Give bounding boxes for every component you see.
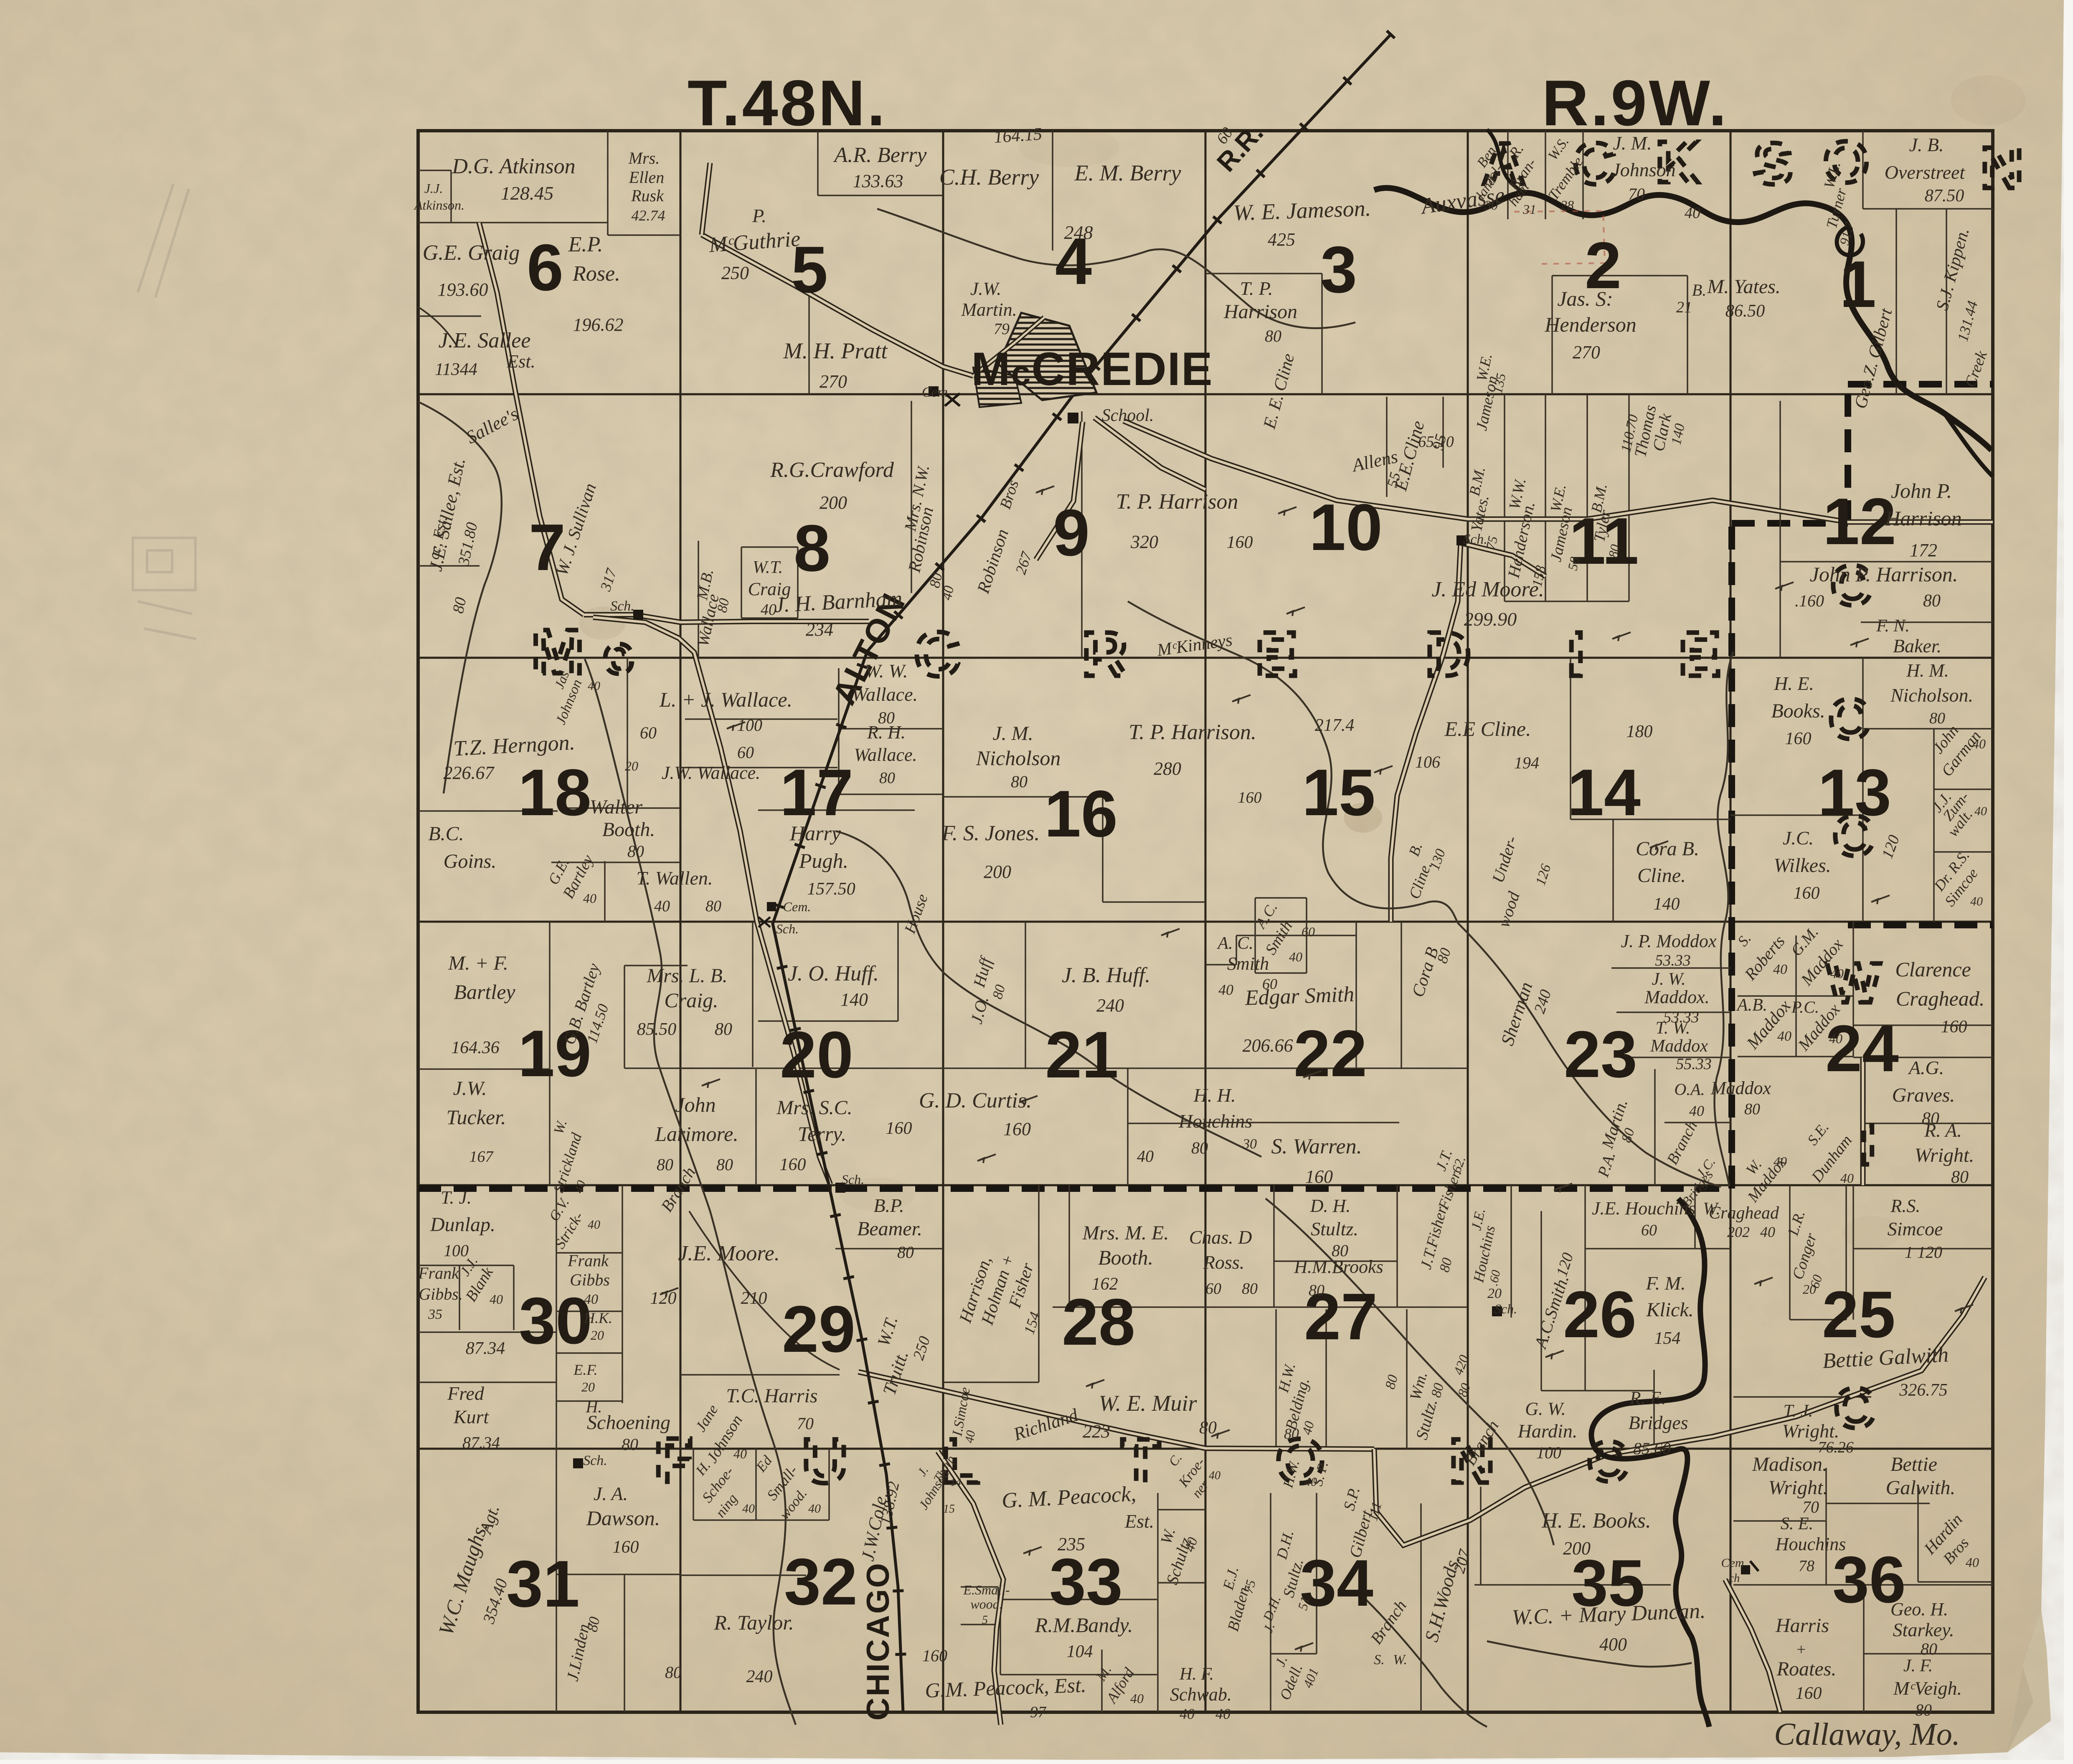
svg-text:c: c xyxy=(603,624,633,685)
svg-text:H.K.: H.K. xyxy=(584,1310,612,1326)
svg-text:20: 20 xyxy=(780,1018,853,1092)
svg-text:13: 13 xyxy=(1818,756,1891,829)
svg-text:G.E. Graig: G.E. Graig xyxy=(423,241,520,265)
svg-text:160: 160 xyxy=(1238,789,1262,806)
svg-text:T.48N.: T.48N. xyxy=(688,67,887,139)
svg-text:6: 6 xyxy=(527,231,563,304)
svg-text:Booth.: Booth. xyxy=(602,819,655,841)
svg-text:T. J.: T. J. xyxy=(1784,1402,1813,1421)
svg-text:I: I xyxy=(1567,619,1585,689)
svg-text:40: 40 xyxy=(1130,1691,1144,1706)
svg-text:Hardin.: Hardin. xyxy=(1517,1420,1578,1442)
svg-text:Callaway, Mo.: Callaway, Mo. xyxy=(1774,1717,1960,1752)
svg-text:28: 28 xyxy=(1560,198,1574,213)
svg-text:E: E xyxy=(1256,619,1297,689)
svg-text:270: 270 xyxy=(820,371,847,392)
svg-text:33: 33 xyxy=(1049,1545,1123,1619)
svg-text:Gibbs.: Gibbs. xyxy=(419,1285,463,1303)
svg-text:J.E. Moore.: J.E. Moore. xyxy=(678,1242,780,1265)
svg-text:80: 80 xyxy=(1744,1100,1760,1118)
svg-text:J.W.: J.W. xyxy=(970,279,1001,299)
svg-text:87.34: 87.34 xyxy=(462,1433,500,1452)
svg-text:Roates.: Roates. xyxy=(1776,1658,1837,1680)
svg-text:106: 106 xyxy=(1415,753,1440,771)
svg-text:25: 25 xyxy=(1822,1278,1895,1351)
svg-text:226.67: 226.67 xyxy=(444,763,495,783)
svg-text:Chas. D: Chas. D xyxy=(1189,1227,1252,1248)
svg-text:J.E. Sallee: J.E. Sallee xyxy=(439,329,531,352)
svg-text:F: F xyxy=(654,1425,693,1495)
svg-text:J.J.: J.J. xyxy=(424,181,443,196)
svg-text:R. Taylor.: R. Taylor. xyxy=(713,1611,794,1634)
svg-text:194: 194 xyxy=(1514,753,1539,772)
svg-text:Rose.: Rose. xyxy=(572,262,620,286)
svg-text:21: 21 xyxy=(1045,1018,1119,1092)
svg-text:B.: B. xyxy=(1692,281,1706,299)
svg-text:40: 40 xyxy=(1774,1154,1787,1169)
svg-text:T. P.: T. P. xyxy=(1240,278,1273,299)
svg-text:Rusk: Rusk xyxy=(631,186,664,205)
svg-text:Ellen: Ellen xyxy=(629,168,664,187)
svg-text:60: 60 xyxy=(640,723,657,742)
svg-text:D. H.: D. H. xyxy=(1310,1196,1351,1216)
svg-text:MᶜVeigh.: MᶜVeigh. xyxy=(1893,1678,1962,1699)
svg-text:J. F.: J. F. xyxy=(1903,1656,1933,1675)
svg-text:M. H. Pratt: M. H. Pratt xyxy=(783,338,888,363)
svg-text:W. W.: W. W. xyxy=(865,660,908,682)
svg-text:J. M.: J. M. xyxy=(1613,132,1652,154)
svg-text:35: 35 xyxy=(428,1307,442,1322)
svg-text:Atkinson.: Atkinson. xyxy=(414,198,464,213)
svg-text:Wright.: Wright. xyxy=(1915,1144,1974,1166)
svg-text:104: 104 xyxy=(1067,1642,1093,1661)
svg-text:20: 20 xyxy=(581,1379,595,1394)
svg-text:E.F.: E.F. xyxy=(573,1361,597,1378)
svg-text:Harry: Harry xyxy=(789,821,841,845)
svg-text:240: 240 xyxy=(1096,995,1124,1016)
svg-text:30: 30 xyxy=(1484,198,1498,213)
svg-text:+: + xyxy=(1796,1641,1807,1658)
svg-text:40: 40 xyxy=(962,1429,978,1444)
svg-text:M. Yates.: M. Yates. xyxy=(1707,276,1781,298)
svg-text:10: 10 xyxy=(1309,491,1383,564)
svg-text:40: 40 xyxy=(1970,895,1983,908)
svg-text:40: 40 xyxy=(583,891,596,906)
svg-text:Maddox: Maddox xyxy=(1710,1078,1771,1098)
svg-text:15: 15 xyxy=(1302,756,1375,829)
svg-text:Goins.: Goins. xyxy=(444,850,497,872)
svg-text:80: 80 xyxy=(1265,327,1281,345)
svg-text:86.50: 86.50 xyxy=(1725,302,1765,321)
svg-text:W. E. Muir: W. E. Muir xyxy=(1099,1391,1197,1416)
svg-text:80: 80 xyxy=(1011,772,1028,791)
svg-text:60: 60 xyxy=(1641,1222,1657,1239)
svg-text:70: 70 xyxy=(797,1414,814,1433)
svg-text:Bartley: Bartley xyxy=(454,980,515,1004)
svg-text:Wallace.: Wallace. xyxy=(852,684,918,705)
svg-text:11344: 11344 xyxy=(435,360,477,379)
svg-text:R.S.: R.S. xyxy=(1890,1196,1921,1216)
svg-text:30: 30 xyxy=(519,1284,592,1358)
svg-text:40: 40 xyxy=(1760,1224,1775,1240)
svg-text:.160: .160 xyxy=(1795,591,1824,610)
svg-text:Pugh.: Pugh. xyxy=(799,849,848,872)
svg-text:T. Wallen.: T. Wallen. xyxy=(637,867,713,889)
svg-text:140: 140 xyxy=(1654,895,1680,914)
svg-text:140: 140 xyxy=(840,989,868,1010)
svg-text:40: 40 xyxy=(654,897,670,915)
svg-text:CHICAGO: CHICAGO xyxy=(860,1562,896,1721)
svg-text:200: 200 xyxy=(984,862,1011,882)
svg-text:40: 40 xyxy=(808,1502,821,1516)
svg-text:160: 160 xyxy=(1796,1684,1822,1703)
svg-text:1: 1 xyxy=(1840,248,1876,321)
svg-text:J. W.: J. W. xyxy=(1652,970,1685,989)
svg-text:202: 202 xyxy=(1727,1224,1750,1240)
svg-text:wood.: wood. xyxy=(970,1597,1002,1612)
svg-text:78: 78 xyxy=(1799,1557,1814,1575)
svg-text:240: 240 xyxy=(746,1667,773,1686)
svg-text:26: 26 xyxy=(1563,1278,1637,1351)
svg-text:160: 160 xyxy=(1305,1166,1333,1187)
svg-text:87.50: 87.50 xyxy=(1925,186,1964,205)
svg-text:J. A.: J. A. xyxy=(594,1483,628,1504)
svg-text:210: 210 xyxy=(741,1289,767,1308)
svg-text:80: 80 xyxy=(657,1155,673,1174)
svg-text:E.E Cline.: E.E Cline. xyxy=(1444,717,1531,740)
svg-text:P.C.: P.C. xyxy=(1791,998,1819,1016)
svg-text:28: 28 xyxy=(1062,1285,1135,1359)
svg-text:217.4: 217.4 xyxy=(1315,716,1355,735)
svg-text:40: 40 xyxy=(1972,736,1986,751)
svg-text:85.50: 85.50 xyxy=(637,1020,677,1039)
svg-text:Frank: Frank xyxy=(418,1264,459,1282)
svg-text:65.10: 65.10 xyxy=(1418,433,1454,451)
svg-text:Starkey.: Starkey. xyxy=(1893,1619,1954,1640)
svg-text:A.B.: A.B. xyxy=(1736,996,1767,1015)
svg-text:100: 100 xyxy=(737,716,762,735)
svg-text:80: 80 xyxy=(879,769,895,787)
svg-text:14: 14 xyxy=(950,1476,961,1488)
svg-text:100: 100 xyxy=(444,1241,469,1260)
svg-text:J.C.: J.C. xyxy=(1783,827,1814,849)
svg-text:S: S xyxy=(1753,131,1792,196)
svg-text:8: 8 xyxy=(794,512,830,585)
svg-text:Dunlap.: Dunlap. xyxy=(430,1214,495,1236)
svg-text:40: 40 xyxy=(490,1292,503,1307)
svg-text:G. D. Curtis.: G. D. Curtis. xyxy=(919,1089,1032,1113)
svg-text:326.75: 326.75 xyxy=(1899,1381,1948,1400)
svg-text:L. + J. Wallace.: L. + J. Wallace. xyxy=(659,688,792,711)
svg-text:Madison.: Madison. xyxy=(1752,1453,1827,1475)
svg-text:S. E.: S. E. xyxy=(1781,1514,1813,1533)
svg-text:15: 15 xyxy=(943,1503,955,1516)
svg-text:U: U xyxy=(802,1426,847,1496)
svg-text:80: 80 xyxy=(1915,1701,1932,1719)
svg-text:85.60: 85.60 xyxy=(1633,1439,1671,1458)
svg-text:H. H.: H. H. xyxy=(1193,1085,1236,1106)
svg-text:Sch.: Sch. xyxy=(776,921,799,936)
svg-text:Gibbs: Gibbs xyxy=(570,1270,610,1289)
svg-text:20: 20 xyxy=(625,758,638,773)
svg-text:23: 23 xyxy=(1564,1018,1637,1091)
svg-text:Mrs. S.C.: Mrs. S.C. xyxy=(776,1097,852,1119)
svg-text:320: 320 xyxy=(1130,532,1158,552)
svg-text:Graves.: Graves. xyxy=(1892,1084,1955,1106)
svg-text:Craghead.: Craghead. xyxy=(1896,987,1985,1010)
svg-text:40: 40 xyxy=(1840,1171,1854,1186)
svg-text:172: 172 xyxy=(1910,540,1937,560)
svg-text:9: 9 xyxy=(1053,496,1090,570)
svg-text:167: 167 xyxy=(469,1148,494,1166)
svg-text:R. A.: R. A. xyxy=(1924,1120,1962,1141)
svg-text:31: 31 xyxy=(1522,202,1536,217)
svg-text:Larimore.: Larimore. xyxy=(655,1122,738,1146)
svg-text:Harris: Harris xyxy=(1775,1614,1829,1637)
svg-text:S. Warren.: S. Warren. xyxy=(1271,1135,1362,1158)
svg-text:80: 80 xyxy=(665,1663,682,1682)
svg-text:20: 20 xyxy=(1487,1286,1502,1301)
svg-text:30: 30 xyxy=(1242,1136,1257,1152)
svg-text:Mrs. M. E.: Mrs. M. E. xyxy=(1082,1222,1169,1244)
svg-text:W. E. Jameson.: W. E. Jameson. xyxy=(1233,195,1371,225)
svg-text:Est.: Est. xyxy=(507,351,535,372)
svg-text:H. E. Books.: H. E. Books. xyxy=(1541,1509,1651,1533)
svg-text:160: 160 xyxy=(613,1538,639,1557)
svg-text:Bettie: Bettie xyxy=(1890,1453,1937,1475)
svg-text:Booth.: Booth. xyxy=(1098,1246,1153,1269)
svg-text:J. P. Moddox: J. P. Moddox xyxy=(1621,931,1717,951)
svg-text:80: 80 xyxy=(1284,1425,1299,1442)
svg-text:C: C xyxy=(914,619,959,689)
svg-text:160: 160 xyxy=(1003,1119,1031,1139)
svg-text:20: 20 xyxy=(591,1328,604,1343)
svg-text:Maddox: Maddox xyxy=(1650,1037,1708,1056)
svg-text:160: 160 xyxy=(886,1119,912,1138)
svg-text:29: 29 xyxy=(782,1293,855,1366)
svg-text:E.Small-: E.Small- xyxy=(963,1582,1010,1597)
svg-text:250: 250 xyxy=(721,263,749,283)
svg-text:D.G. Atkinson: D.G. Atkinson xyxy=(452,155,575,178)
svg-text:40: 40 xyxy=(1974,804,1987,818)
svg-text:Simcoe: Simcoe xyxy=(1888,1218,1943,1239)
svg-text:42.74: 42.74 xyxy=(632,207,665,224)
svg-text:H.M.Brooks: H.M.Brooks xyxy=(1294,1257,1383,1277)
svg-text:E.P.: E.P. xyxy=(568,233,603,256)
svg-text:Clarence: Clarence xyxy=(1895,958,1971,981)
svg-text:40: 40 xyxy=(1830,966,1844,981)
svg-text:R. H.: R. H. xyxy=(867,722,906,743)
svg-text:160: 160 xyxy=(1941,1017,1967,1037)
svg-text:60: 60 xyxy=(1302,924,1315,939)
svg-text:A.G.: A.G. xyxy=(1908,1057,1944,1078)
svg-text:24: 24 xyxy=(1825,1012,1899,1085)
svg-text:W.T.: W.T. xyxy=(753,558,783,577)
svg-text:206.66: 206.66 xyxy=(1243,1035,1293,1056)
svg-text:Cline.: Cline. xyxy=(1637,864,1686,887)
svg-text:280: 280 xyxy=(1154,758,1181,779)
svg-text:164.15: 164.15 xyxy=(993,124,1043,147)
svg-text:164.36: 164.36 xyxy=(451,1038,500,1057)
svg-text:80: 80 xyxy=(627,842,644,861)
svg-text:G. W.: G. W. xyxy=(1525,1399,1566,1419)
svg-text:R. E.: R. E. xyxy=(1629,1388,1666,1408)
svg-text:Schwab.: Schwab. xyxy=(1170,1684,1232,1705)
svg-text:22: 22 xyxy=(1294,1017,1367,1090)
svg-text:Nicholson.: Nicholson. xyxy=(1890,684,1973,706)
svg-text:180: 180 xyxy=(1626,722,1653,741)
svg-text:R.9W.: R.9W. xyxy=(1542,67,1728,139)
svg-text:Mrs.: Mrs. xyxy=(628,149,660,167)
svg-text:P.: P. xyxy=(752,205,766,226)
svg-text:40: 40 xyxy=(1685,204,1700,222)
svg-text:Baker.: Baker. xyxy=(1893,635,1941,656)
svg-text:F. N.: F. N. xyxy=(1876,616,1910,636)
svg-text:80: 80 xyxy=(1951,1168,1969,1187)
svg-text:425: 425 xyxy=(1268,229,1295,250)
svg-text:18: 18 xyxy=(518,756,591,829)
svg-text:133.63: 133.63 xyxy=(853,171,903,191)
svg-text:Cem.: Cem. xyxy=(783,899,811,914)
svg-text:F. M.: F. M. xyxy=(1646,1272,1686,1294)
svg-text:Smith: Smith xyxy=(1227,953,1269,974)
svg-text:Frank: Frank xyxy=(567,1251,609,1270)
svg-text:299.90: 299.90 xyxy=(1464,608,1517,630)
svg-text:Harrison: Harrison xyxy=(1885,507,1961,530)
svg-text:C.H. Berry: C.H. Berry xyxy=(939,165,1039,190)
svg-text:Klick.: Klick. xyxy=(1646,1299,1693,1321)
svg-text:T.C. Harris: T.C. Harris xyxy=(726,1385,817,1407)
svg-text:B.P.: B.P. xyxy=(873,1195,904,1216)
svg-text:40: 40 xyxy=(1689,1102,1704,1119)
svg-text:Nicholson: Nicholson xyxy=(976,746,1061,770)
svg-text:Fred: Fred xyxy=(447,1383,485,1404)
svg-text:40: 40 xyxy=(1180,1706,1195,1722)
svg-text:40: 40 xyxy=(1773,962,1787,977)
svg-text:40: 40 xyxy=(1777,1029,1791,1044)
svg-text:Houchins: Houchins xyxy=(1775,1534,1846,1554)
svg-text:40: 40 xyxy=(1215,1706,1231,1722)
svg-text:20: 20 xyxy=(1803,1282,1816,1297)
svg-text:40: 40 xyxy=(1209,1469,1220,1482)
svg-text:McCREDIE: McCREDIE xyxy=(971,343,1213,395)
svg-text:Ross.: Ross. xyxy=(1203,1252,1244,1273)
svg-text:Schoening: Schoening xyxy=(587,1412,670,1434)
svg-text:R.M.Bandy.: R.M.Bandy. xyxy=(1035,1613,1133,1637)
svg-text:Books.: Books. xyxy=(1771,700,1825,722)
svg-text:Craghead: Craghead xyxy=(1709,1204,1779,1223)
svg-text:Cem: Cem xyxy=(922,385,948,400)
svg-text:Houchins: Houchins xyxy=(1178,1110,1252,1132)
svg-text:60: 60 xyxy=(1205,1280,1221,1298)
svg-text:Terry.: Terry. xyxy=(798,1122,846,1146)
svg-text:40: 40 xyxy=(1829,1031,1842,1046)
svg-text:80: 80 xyxy=(705,897,721,915)
svg-text:160: 160 xyxy=(922,1646,947,1665)
svg-text:196.62: 196.62 xyxy=(573,314,624,335)
svg-text:40: 40 xyxy=(588,679,600,693)
svg-text:F. S. Jones.: F. S. Jones. xyxy=(941,821,1040,845)
svg-text:80: 80 xyxy=(1242,1280,1258,1298)
svg-text:14: 14 xyxy=(1567,756,1641,829)
svg-text:21: 21 xyxy=(1676,299,1692,316)
svg-text:J. M.: J. M. xyxy=(992,722,1033,745)
svg-text:Edgar Smith: Edgar Smith xyxy=(1244,982,1355,1010)
svg-text:160: 160 xyxy=(1785,729,1812,748)
svg-text:S.: S. xyxy=(1374,1652,1385,1668)
svg-text:Beamer.: Beamer. xyxy=(857,1218,922,1240)
svg-text:T. P. Harrison.: T. P. Harrison. xyxy=(1129,720,1256,744)
svg-text:154: 154 xyxy=(1654,1329,1681,1348)
svg-text:R.G.Crawford: R.G.Crawford xyxy=(770,458,894,482)
svg-text:John P. Harrison.: John P. Harrison. xyxy=(1810,563,1958,586)
svg-text:235: 235 xyxy=(1058,1534,1085,1554)
svg-text:80: 80 xyxy=(1921,1640,1937,1658)
svg-text:40: 40 xyxy=(1218,981,1233,998)
svg-text:I: I xyxy=(1860,1113,1876,1176)
svg-text:Sch.: Sch. xyxy=(583,1453,607,1468)
svg-text:80: 80 xyxy=(897,1243,914,1262)
svg-text:97: 97 xyxy=(1030,1703,1047,1721)
svg-text:80: 80 xyxy=(1929,710,1945,727)
svg-text:80: 80 xyxy=(716,1155,733,1174)
svg-text:70: 70 xyxy=(1628,185,1645,203)
svg-text:80: 80 xyxy=(622,1435,638,1454)
svg-text:M. + F.: M. + F. xyxy=(448,952,508,974)
svg-text:J. B. Huff.: J. B. Huff. xyxy=(1062,963,1150,987)
svg-text:Stultz.: Stultz. xyxy=(1311,1218,1358,1239)
svg-text:Est.: Est. xyxy=(1124,1511,1154,1532)
svg-text:Craig.: Craig. xyxy=(664,988,718,1012)
svg-text:C: C xyxy=(1829,687,1870,750)
svg-text:ch: ch xyxy=(1729,1572,1740,1585)
svg-text:H. E.: H. E. xyxy=(1774,673,1814,694)
svg-text:John: John xyxy=(675,1093,716,1116)
svg-text:400: 400 xyxy=(1599,1634,1627,1655)
svg-text:55.33: 55.33 xyxy=(1676,1055,1712,1073)
svg-text:Sch.: Sch. xyxy=(610,598,634,614)
svg-text:Overstreet: Overstreet xyxy=(1885,162,1966,183)
svg-text:T. W.: T. W. xyxy=(1656,1019,1690,1038)
svg-text:B.C.: B.C. xyxy=(428,823,464,845)
svg-text:J.W. Wallace.: J.W. Wallace. xyxy=(662,763,760,783)
svg-text:Sch.: Sch. xyxy=(842,1172,864,1187)
svg-text:157.50: 157.50 xyxy=(807,879,855,899)
svg-text:31: 31 xyxy=(506,1547,580,1621)
svg-text:60: 60 xyxy=(737,743,754,762)
svg-text:80: 80 xyxy=(1309,1282,1324,1299)
svg-text:40: 40 xyxy=(588,1218,600,1232)
svg-text:School.: School. xyxy=(1102,406,1154,425)
svg-text:200: 200 xyxy=(820,492,847,513)
svg-text:79: 79 xyxy=(994,320,1010,338)
svg-text:80: 80 xyxy=(1191,1138,1208,1157)
svg-text:A. C.: A. C. xyxy=(1216,934,1253,953)
svg-text:Harrison: Harrison xyxy=(1223,301,1297,323)
svg-text:100: 100 xyxy=(1536,1443,1561,1462)
svg-text:17: 17 xyxy=(780,756,853,829)
svg-text:40: 40 xyxy=(584,1292,598,1307)
svg-text:270: 270 xyxy=(1573,342,1600,362)
svg-text:A.R. Berry: A.R. Berry xyxy=(833,143,927,167)
svg-text:87.34: 87.34 xyxy=(466,1339,505,1358)
svg-text:Jas. S:: Jas. S: xyxy=(1557,287,1613,310)
svg-text:248: 248 xyxy=(1064,222,1093,243)
svg-text:R: R xyxy=(1082,619,1127,689)
svg-text:40: 40 xyxy=(1289,949,1302,964)
svg-text:Maddox.: Maddox. xyxy=(1644,987,1709,1007)
svg-text:J.W.: J.W. xyxy=(453,1077,487,1100)
